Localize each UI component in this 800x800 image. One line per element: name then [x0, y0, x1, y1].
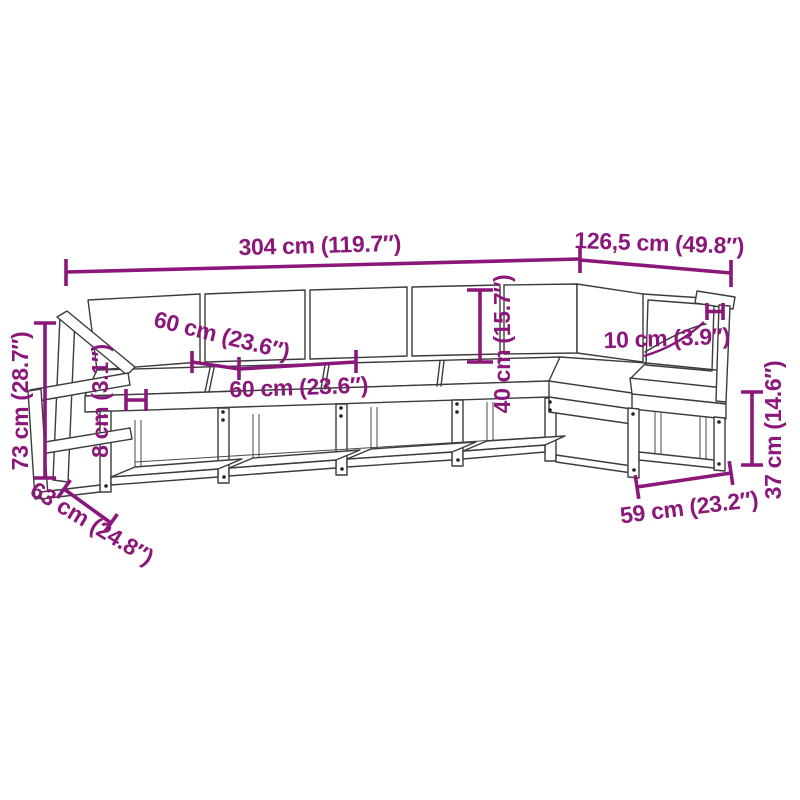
right-section: [549, 378, 726, 478]
dim-label-front-seat-width: 59 cm (23.2″): [619, 486, 760, 529]
dim-line-side-section: [580, 260, 731, 287]
dim-label-seat-frame-height: 37 cm (14.6″): [760, 361, 786, 500]
dim-label-seat-width: 60 cm (23.6″): [229, 372, 369, 403]
diagram-canvas: 304 cm (119.7″) 126,5 cm (49.8″) 60 cm (…: [0, 0, 800, 800]
dim-label-total-height: 73 cm (28.7″): [7, 332, 33, 471]
sofa-line-drawing: [28, 284, 735, 499]
dim-label-side-section-length: 126,5 cm (49.8″): [574, 227, 745, 259]
seat-and-apron: [85, 357, 716, 412]
dim-label-total-length: 304 cm (119.7″): [238, 230, 401, 260]
product-dimension-diagram: 304 cm (119.7″) 126,5 cm (49.8″) 60 cm (…: [0, 0, 800, 800]
dim-label-backrest-height: 40 cm (15.7″): [489, 275, 515, 414]
dim-label-armrest-width: 10 cm (3.9″): [603, 323, 730, 353]
dim-label-cushion-thickness: 8 cm (3.1″): [87, 344, 113, 458]
